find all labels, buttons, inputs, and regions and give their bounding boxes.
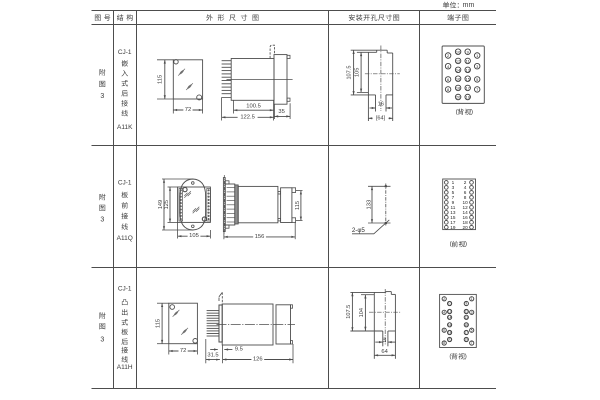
svg-text:115: 115: [156, 319, 162, 328]
svg-text:16: 16: [382, 337, 388, 343]
svg-text:31.5: 31.5: [207, 353, 218, 359]
svg-text:19: 19: [465, 338, 469, 342]
svg-text:9: 9: [465, 302, 467, 306]
svg-text:15: 15: [465, 323, 469, 327]
svg-text:19: 19: [466, 95, 470, 100]
svg-text:3: 3: [476, 64, 478, 69]
svg-text:3: 3: [471, 310, 473, 314]
svg-text:1: 1: [471, 297, 473, 301]
svg-text:8: 8: [447, 87, 449, 92]
svg-text:17: 17: [465, 331, 469, 335]
svg-text:19: 19: [450, 225, 456, 230]
svg-text:72: 72: [180, 348, 186, 354]
svg-text:20: 20: [462, 225, 468, 230]
svg-text:126: 126: [253, 357, 263, 363]
svg-text:): ): [465, 353, 467, 360]
svg-text:11: 11: [466, 59, 470, 64]
svg-text:13: 13: [466, 67, 470, 72]
svg-text:105: 105: [189, 233, 199, 239]
svg-text:156: 156: [255, 234, 265, 240]
svg-text:5: 5: [476, 77, 478, 82]
svg-text:16: 16: [378, 101, 384, 107]
svg-text:CJ-1: CJ-1: [118, 180, 132, 187]
svg-text:133: 133: [366, 200, 372, 210]
svg-text:125: 125: [164, 200, 170, 209]
svg-text:A11K: A11K: [117, 124, 133, 131]
svg-text:107.5: 107.5: [347, 66, 353, 80]
svg-text:1: 1: [476, 53, 478, 58]
svg-text:12: 12: [448, 310, 452, 314]
svg-text:16: 16: [448, 323, 452, 327]
svg-text:7: 7: [476, 87, 478, 92]
svg-text:4: 4: [443, 310, 445, 314]
svg-text:[64]: [64]: [376, 115, 386, 121]
svg-text:8: 8: [443, 341, 445, 345]
svg-text:17: 17: [466, 86, 470, 91]
svg-text:A11H: A11H: [117, 364, 133, 371]
svg-text:11: 11: [465, 310, 469, 314]
svg-text:mm: mm: [463, 2, 475, 9]
svg-text:104: 104: [359, 308, 365, 317]
svg-text:72: 72: [185, 107, 191, 113]
svg-text:CJ-1: CJ-1: [118, 49, 132, 56]
svg-text:3: 3: [100, 217, 104, 224]
svg-text:15: 15: [466, 76, 470, 81]
svg-text:): ): [471, 108, 473, 115]
svg-text:9: 9: [467, 49, 469, 54]
svg-text:14: 14: [448, 315, 452, 319]
svg-text:100.5: 100.5: [246, 104, 261, 110]
svg-text:3: 3: [100, 93, 104, 100]
svg-text:16: 16: [456, 76, 460, 81]
svg-text:35: 35: [278, 109, 284, 115]
svg-text:20: 20: [448, 338, 452, 342]
svg-text:CJ-1: CJ-1: [118, 286, 132, 293]
svg-text:64: 64: [381, 349, 388, 355]
svg-text:): ): [465, 241, 467, 248]
svg-text:10: 10: [448, 302, 452, 306]
svg-text:2-φ5: 2-φ5: [352, 227, 366, 234]
svg-text:2: 2: [443, 297, 445, 301]
svg-text:2: 2: [447, 53, 449, 58]
svg-text:18: 18: [456, 86, 460, 91]
svg-text:9.5: 9.5: [235, 347, 243, 353]
svg-text:107.5: 107.5: [346, 305, 352, 319]
svg-text:115: 115: [158, 75, 164, 84]
svg-text:12: 12: [456, 59, 460, 64]
svg-text:149: 149: [158, 200, 164, 209]
svg-text:A11Q: A11Q: [117, 235, 133, 242]
svg-text:122.5: 122.5: [240, 114, 255, 120]
svg-text:6: 6: [443, 328, 445, 332]
svg-text:115: 115: [295, 201, 301, 210]
svg-text:6: 6: [447, 77, 449, 82]
svg-text:18: 18: [448, 331, 452, 335]
svg-text:13: 13: [465, 315, 469, 319]
svg-text:3: 3: [100, 336, 104, 343]
svg-text:105: 105: [355, 68, 361, 77]
svg-text:5: 5: [471, 328, 473, 332]
svg-text:7: 7: [471, 341, 473, 345]
